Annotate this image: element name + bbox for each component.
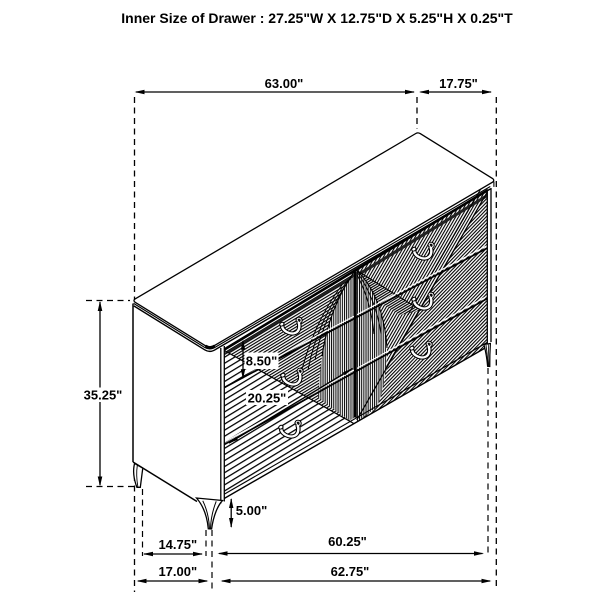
svg-text:17.75": 17.75" [439, 76, 478, 91]
svg-text:62.75": 62.75" [331, 564, 370, 579]
svg-text:8.50": 8.50" [246, 354, 277, 369]
svg-text:60.25": 60.25" [328, 534, 367, 549]
svg-text:35.25": 35.25" [84, 388, 123, 403]
svg-text:20.25": 20.25" [248, 391, 287, 406]
svg-text:Inner Size of Drawer : 27.25"W: Inner Size of Drawer : 27.25"W X 12.75"D… [121, 10, 513, 26]
svg-text:63.00": 63.00" [265, 76, 304, 91]
svg-text:5.00": 5.00" [236, 503, 267, 518]
svg-text:17.00": 17.00" [158, 564, 197, 579]
svg-text:14.75": 14.75" [158, 537, 197, 552]
